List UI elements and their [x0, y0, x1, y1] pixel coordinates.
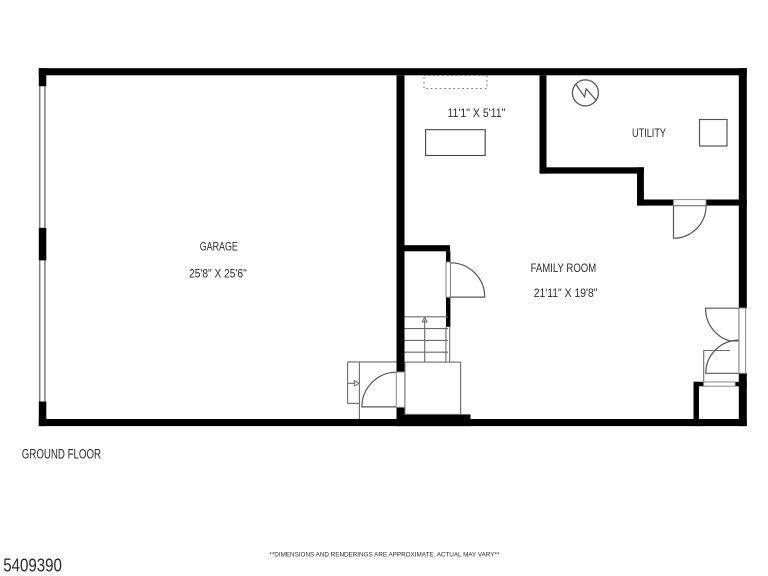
svg-text:GARAGE: GARAGE [200, 239, 238, 253]
svg-text:GROUND FLOOR: GROUND FLOOR [22, 447, 101, 463]
svg-text:UTILITY: UTILITY [632, 126, 666, 140]
svg-text:**DIMENSIONS AND RENDERINGS AR: **DIMENSIONS AND RENDERINGS ARE APPROXIM… [269, 552, 500, 559]
svg-text:21'11" X 19'8": 21'11" X 19'8" [534, 286, 598, 300]
svg-text:FAMILY ROOM: FAMILY ROOM [531, 261, 597, 275]
svg-text:25'8" X 25'6": 25'8" X 25'6" [189, 267, 247, 281]
svg-text:5409390: 5409390 [3, 555, 62, 576]
svg-text:11'1" X 5'11": 11'1" X 5'11" [447, 106, 505, 120]
